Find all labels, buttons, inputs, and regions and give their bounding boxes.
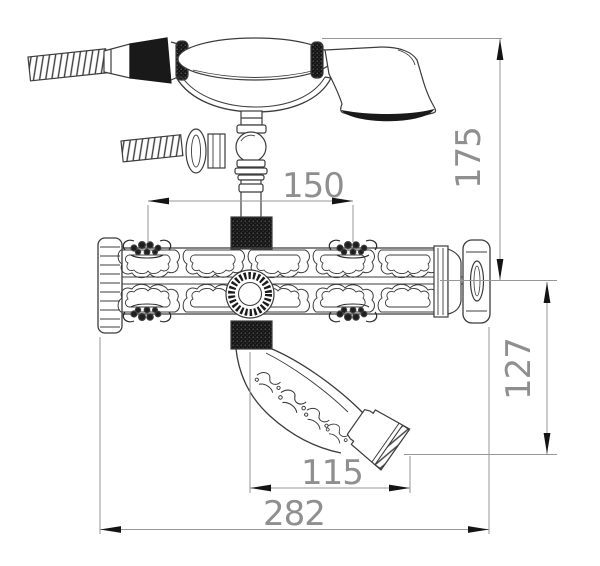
body-right-cap — [434, 246, 461, 317]
ball-joint — [236, 132, 266, 162]
dim-127-arrow-bottom — [544, 433, 551, 454]
dim-115-label: 115 — [301, 453, 363, 493]
dim-175-arrow-top — [497, 39, 504, 60]
dim-150-arrow-left — [148, 198, 169, 205]
dim-175-arrow-bottom — [497, 259, 504, 280]
dim-282-arrow-right — [468, 526, 489, 533]
spout — [236, 349, 410, 470]
spout-knurl — [231, 321, 272, 349]
shower-head-bell — [325, 47, 436, 119]
drawing-page: 150 175 127 115 — [0, 0, 600, 566]
mixer-body — [98, 238, 490, 349]
body-tube — [122, 248, 435, 314]
shower-grip — [130, 38, 171, 83]
body-ornament-top — [118, 250, 439, 278]
dim-150-label: 150 — [282, 166, 344, 206]
dim-115-arrow-left — [250, 485, 271, 492]
shower-hose — [28, 49, 108, 81]
hose-cone-fitting — [104, 44, 130, 78]
dim-overall-length: 282 — [100, 327, 489, 534]
dim-175-label: 175 — [449, 127, 489, 189]
inlet-hose — [121, 135, 183, 162]
wall-union — [463, 240, 490, 323]
spout-outer-edge — [272, 349, 373, 424]
dim-282-label: 282 — [263, 494, 325, 534]
hose-cup-washer — [186, 129, 206, 173]
dim-282-arrow-left — [100, 526, 121, 533]
handle-collar-right — [311, 42, 323, 78]
technical-drawing-canvas: 150 175 127 115 — [0, 0, 600, 566]
riser-knurl — [231, 217, 272, 249]
body-ornament-bottom — [118, 284, 439, 312]
hand-shower — [28, 38, 436, 162]
dim-127-label: 127 — [499, 338, 539, 400]
spout-inner-edge — [236, 349, 341, 453]
shower-handle — [178, 38, 332, 80]
hose-nut — [208, 134, 225, 168]
dim-115-arrow-right — [389, 485, 410, 492]
dim-127-arrow-top — [544, 282, 551, 303]
diverter-knob — [226, 270, 274, 318]
